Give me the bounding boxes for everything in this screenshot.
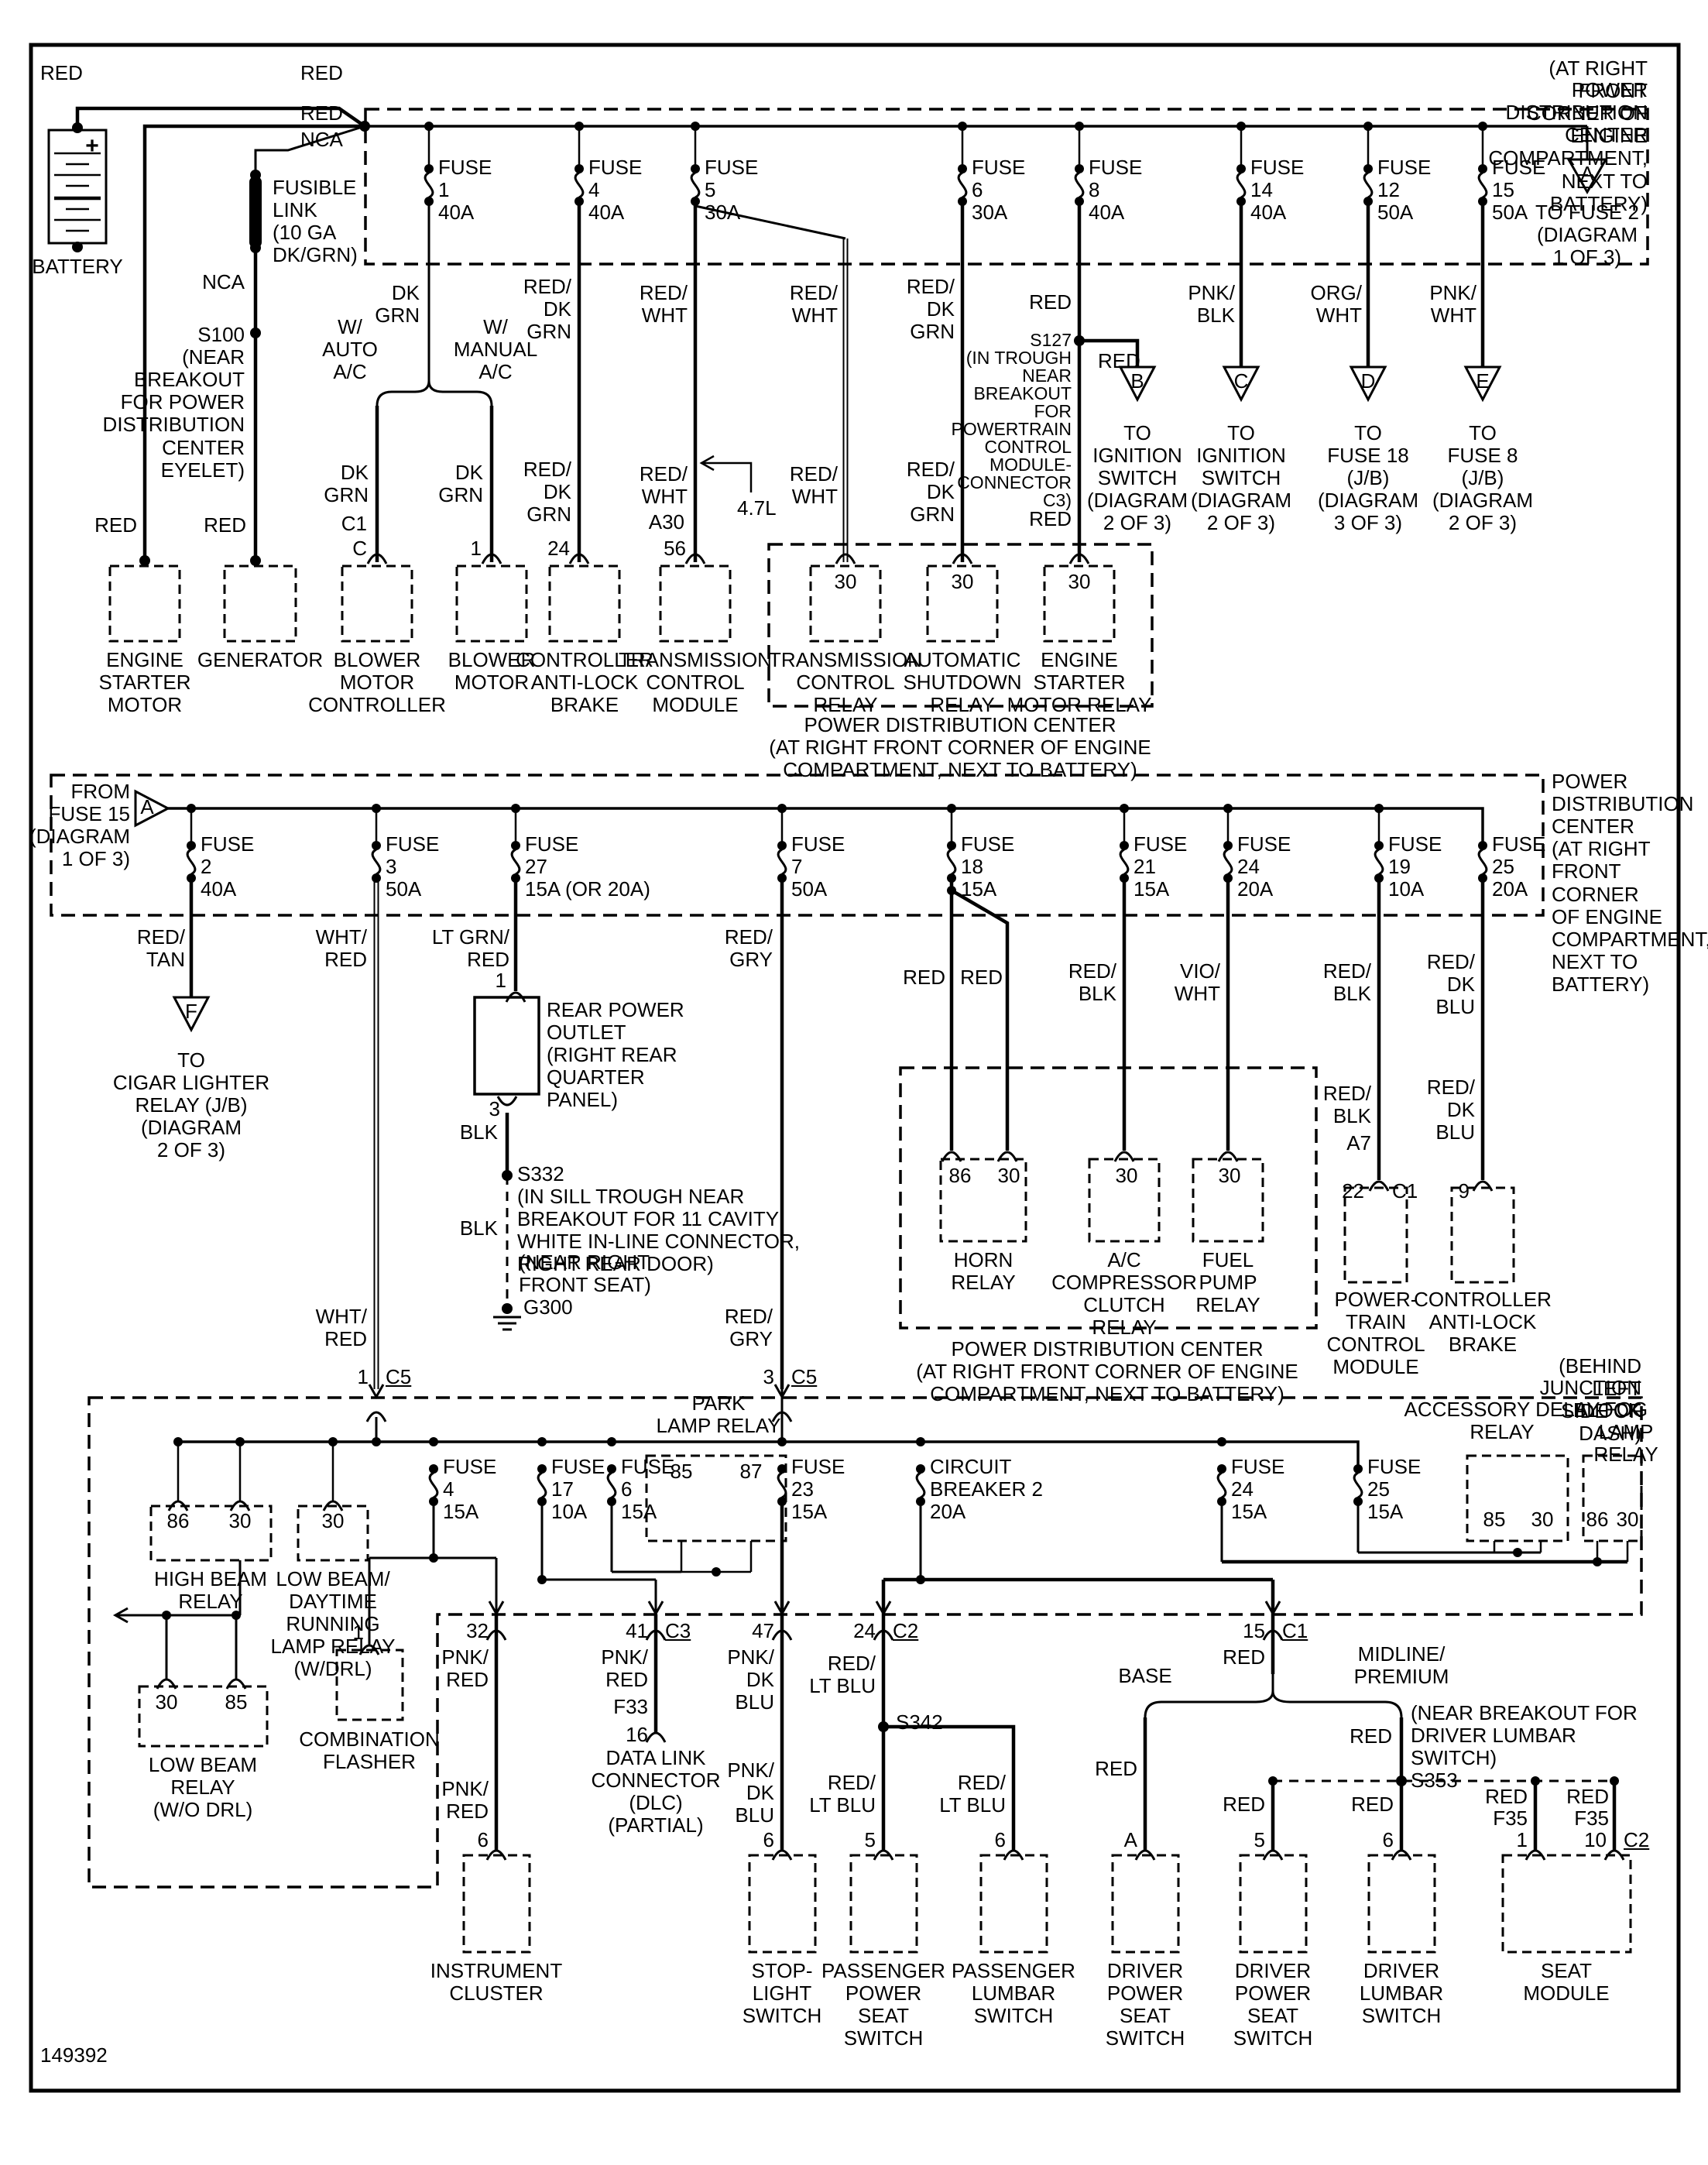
connector-c5-a: C5 xyxy=(386,1366,411,1388)
generator-box xyxy=(225,566,296,641)
splice-s353-note: (NEAR BREAKOUT FOR DRIVER LUMBAR SWITCH)… xyxy=(1411,1702,1638,1792)
connector-c1-b: C1 xyxy=(1282,1620,1308,1642)
ic-pin-6: 6 xyxy=(478,1829,489,1851)
accessory-delay-relay-label: ACCESSORY DELAY RELAY xyxy=(1404,1398,1600,1443)
hbr-pin-86: 86 xyxy=(167,1510,190,1532)
dls-pin-6: 6 xyxy=(1383,1829,1394,1851)
battery-label: BATTERY xyxy=(32,256,123,278)
jb-fuse-25-label: FUSE 25 15A xyxy=(1367,1456,1421,1523)
engine-4-7l-pointer xyxy=(701,456,751,492)
wire-blk-2: BLK xyxy=(460,1217,498,1240)
passenger-lumbar-switch-label: PASSENGER LUMBAR SWITCH xyxy=(952,1960,1075,2027)
wire-whtred-top: WHT/ RED xyxy=(316,926,367,971)
pin-1: 1 xyxy=(471,537,482,560)
wire-dkgrn-top: DK GRN xyxy=(375,282,420,327)
driver-power-seat-switch-b-box xyxy=(1240,1855,1306,1952)
high-beam-relay-label: HIGH BEAM RELAY xyxy=(154,1568,267,1613)
fuse-3-label: FUSE 3 50A xyxy=(386,833,439,901)
wire-red-f35a: RED xyxy=(1485,1786,1528,1808)
rear-power-outlet-label: REAR POWER OUTLET (RIGHT REAR QUARTER PA… xyxy=(547,999,684,1112)
wire-redltblu-pls: RED/ LT BLU xyxy=(939,1772,1006,1817)
jb-fuse-4-label: FUSE 4 15A xyxy=(443,1456,496,1523)
horn-pin-86: 86 xyxy=(949,1165,972,1187)
pls-pin-6: 6 xyxy=(995,1829,1006,1851)
circuit-breaker-2-label: CIRCUIT BREAKER 2 20A xyxy=(930,1456,1043,1523)
low-beam-drl-relay-label: LOW BEAM/ DAYTIME RUNNING LAMP RELAY (W/… xyxy=(271,1568,396,1681)
wire-pnkred-ic-top: PNK/ RED xyxy=(441,1646,489,1691)
adr-pin-30: 30 xyxy=(1531,1508,1554,1531)
wire-red-esmr: RED xyxy=(1029,508,1072,530)
wire-redblk-f21: RED/ BLK xyxy=(1068,960,1116,1005)
jb-fuse-23-label: FUSE 23 15A xyxy=(791,1456,845,1523)
wire-redltblu-pps: RED/ LT BLU xyxy=(809,1772,876,1817)
splice-s342-label: S342 xyxy=(896,1711,943,1734)
caption-ignition-b: TO IGNITION SWITCH (DIAGRAM 2 OF 3) xyxy=(1087,422,1188,535)
dlc-pin-16: 16 xyxy=(626,1724,648,1746)
stop-light-switch-box xyxy=(749,1855,815,1952)
wire-redwht-f5-bot: RED/ WHT xyxy=(640,463,688,508)
fpr-pin-30: 30 xyxy=(1219,1165,1241,1187)
pcm-pin-22: 22 xyxy=(1342,1180,1364,1203)
wire-redwht-f5-top: RED/ WHT xyxy=(640,282,688,327)
esmr-pin-30: 30 xyxy=(1068,571,1091,593)
wire-pnkdkblu-top: PNK/ DK BLU xyxy=(727,1646,774,1714)
engine-4-7l-note: 4.7L xyxy=(737,497,777,520)
triangle-e-letter: E xyxy=(1476,370,1489,393)
dpss-pin-a: A xyxy=(1124,1829,1137,1851)
triangle-d-letter: D xyxy=(1361,370,1376,393)
triangle-c-letter: C xyxy=(1234,370,1249,393)
wire-redltblu-top: RED/ LT BLU xyxy=(809,1652,876,1697)
combination-flasher-label: COMBINATION FLASHER xyxy=(299,1728,440,1773)
ground-g300 xyxy=(493,1303,521,1330)
engine-starter-motor-box xyxy=(110,566,180,641)
park-pin-87: 87 xyxy=(740,1460,763,1483)
wire-viowht: VIO/ WHT xyxy=(1175,960,1220,1005)
connector-c2-a: C2 xyxy=(893,1620,918,1642)
fuse-18-label: FUSE 18 15A xyxy=(961,833,1014,901)
c5-pin-1: 1 xyxy=(358,1366,369,1388)
driver-power-seat-switch-a-label: DRIVER POWER SEAT SWITCH xyxy=(1106,1960,1185,2050)
transmission-control-module-label: TRANSMISSION CONTROL MODULE xyxy=(619,649,772,716)
powertrain-control-module-label: POWER- TRAIN CONTROL MODULE xyxy=(1326,1288,1425,1378)
connector-f35-b: F35 xyxy=(1574,1807,1609,1830)
pin-56: 56 xyxy=(664,537,686,560)
wire-redblk-f19-bot: RED/ BLK xyxy=(1323,1082,1371,1127)
wire-dkgrn-right: DK GRN xyxy=(438,461,483,506)
passenger-lumbar-switch-box xyxy=(981,1855,1047,1952)
wire-red-horn30: RED xyxy=(960,966,1003,989)
pcm-connector-c1: C1 xyxy=(1392,1180,1418,1203)
connector-c2-b: C2 xyxy=(1624,1829,1649,1851)
wire-red-15: RED xyxy=(1223,1646,1265,1669)
fuse-1-label: FUSE 1 40A xyxy=(438,156,492,224)
connector-pin-47: 47 xyxy=(752,1620,774,1642)
jb-fuse-24-label: FUSE 24 15A xyxy=(1231,1456,1284,1523)
controller-antilock-brake-box xyxy=(550,566,619,641)
blower-motor-box xyxy=(457,566,526,641)
fuel-pump-relay-label: FUEL PUMP RELAY xyxy=(1195,1249,1260,1316)
fuse-7-label: FUSE 7 50A xyxy=(791,833,845,901)
wire-blk-1: BLK xyxy=(460,1121,498,1144)
pps-pin-5: 5 xyxy=(865,1829,876,1851)
transmission-control-module-box xyxy=(660,566,730,641)
pdc1-title: POWER DISTRIBUTION CENTER xyxy=(1506,79,1648,146)
rear-power-outlet-box xyxy=(475,997,539,1094)
pdc1-fuse-row xyxy=(424,122,1487,206)
caption-fuse8-e: TO FUSE 8 (J/B) (DIAGRAM 2 OF 3) xyxy=(1432,422,1533,535)
engine-starter-motor-relay-label: ENGINE STARTER MOTOR RELAY xyxy=(1007,649,1152,716)
wire-red-3: RED xyxy=(300,102,343,125)
wire-red-b6: RED xyxy=(1351,1793,1394,1816)
driver-lumbar-switch-box xyxy=(1369,1855,1435,1952)
wire-redtan: RED/ TAN xyxy=(137,926,185,971)
fuse-2-label: FUSE 2 40A xyxy=(201,833,254,901)
wire-dkgrn-left: DK GRN xyxy=(324,461,369,506)
stop-light-switch-label: STOP- LIGHT SWITCH xyxy=(743,1960,822,2027)
accr-pin-30: 30 xyxy=(1116,1165,1138,1187)
driver-power-seat-switch-b-label: DRIVER POWER SEAT SWITCH xyxy=(1233,1960,1313,2050)
horn-relay-label: HORN RELAY xyxy=(951,1249,1015,1294)
ac-compressor-clutch-relay-label: A/C COMPRESSOR CLUTCH RELAY xyxy=(1051,1249,1197,1339)
wire-red-horn86: RED xyxy=(903,966,945,989)
wire-red-2: RED xyxy=(300,62,343,84)
connector-pin-41: 41 xyxy=(626,1620,648,1642)
wire-nca-2: NCA xyxy=(202,271,245,293)
fuse-25-label: FUSE 25 20A xyxy=(1492,833,1545,901)
to-fuse2-caption: TO FUSE 2 (DIAGRAM 1 OF 3) xyxy=(1535,201,1639,269)
transmission-control-relay-label: TRANSMISSION CONTROL RELAY xyxy=(769,649,922,716)
c5-pin-3: 3 xyxy=(763,1366,774,1388)
instrument-cluster-box xyxy=(464,1855,530,1952)
fusible-link-symbol xyxy=(249,170,262,253)
pin-c: C xyxy=(352,537,367,560)
wire-pnkblk: PNK/ BLK xyxy=(1188,282,1235,327)
connector-pin-32: 32 xyxy=(466,1620,489,1642)
wire-reddkgrn-f4-top: RED/ DK GRN xyxy=(523,276,571,343)
caption-fuse18-d: TO FUSE 18 (J/B) (DIAGRAM 3 OF 3) xyxy=(1318,422,1418,535)
connector-c5-b: C5 xyxy=(791,1366,817,1388)
lbr-pin-30: 30 xyxy=(156,1691,178,1714)
lbdrl-pin-30: 30 xyxy=(322,1510,345,1532)
caption-cigar-lighter: TO CIGAR LIGHTER RELAY (J/B) (DIAGRAM 2 … xyxy=(113,1049,269,1162)
whtred-wire xyxy=(375,878,379,1389)
fuse-12-label: FUSE 12 50A xyxy=(1377,156,1431,224)
jb-fuse-6-label: FUSE 6 15A xyxy=(621,1456,674,1523)
fuse-5-label: FUSE 5 30A xyxy=(705,156,758,224)
blower-motor-controller-box xyxy=(342,566,412,641)
wire-reddkgrn-f6-top: RED/ DK GRN xyxy=(907,276,955,343)
wire-redwht-tcr-bot: RED/ WHT xyxy=(790,463,838,508)
fuse-27-label: FUSE 27 15A (OR 20A) xyxy=(525,833,650,901)
passenger-power-seat-switch-label: PASSENGER POWER SEAT SWITCH xyxy=(821,1960,945,2050)
wire-red-esm: RED xyxy=(94,514,137,537)
triangle-b-letter: B xyxy=(1130,370,1144,393)
splice-s100 xyxy=(250,328,261,338)
near-right-front-seat-note: (NEAR RIGHT FRONT SEAT) xyxy=(519,1251,651,1296)
park-lamp-relay-label: PARK LAMP RELAY xyxy=(657,1392,781,1437)
wire-red-gen: RED xyxy=(204,514,246,537)
driver-power-seat-switch-a-box xyxy=(1113,1855,1178,1952)
generator-label: GENERATOR xyxy=(197,649,323,671)
wire-orgwht: ORG/ WHT xyxy=(1311,282,1362,327)
low-beam-relay-wodrl-label: LOW BEAM RELAY (W/O DRL) xyxy=(149,1754,257,1821)
sls-pin-6: 6 xyxy=(763,1829,774,1851)
instrument-cluster-label: INSTRUMENT CLUSTER xyxy=(430,1960,562,2005)
connector-pin-15: 15 xyxy=(1243,1620,1265,1642)
hbr-pin-30: 30 xyxy=(229,1510,252,1532)
adr-pin-85: 85 xyxy=(1483,1508,1506,1531)
lbr-pin-85: 85 xyxy=(225,1691,248,1714)
ground-g300-label: G300 xyxy=(523,1296,573,1319)
splice-s100-label: S100 (NEAR BREAKOUT FOR POWER DISTRIBUTI… xyxy=(103,324,245,482)
wiring-diagram-page: (AT RIGHT FRONT CORNER OF ENGINE COMPART… xyxy=(0,0,1708,2165)
wire-pnkred-ic-bot: PNK/ RED xyxy=(441,1778,489,1823)
wire-reddkgrn-f4-bot: RED/ DK GRN xyxy=(523,458,571,526)
fuse-19-label: FUSE 19 10A xyxy=(1388,833,1442,901)
wire-red-f35b: RED xyxy=(1566,1786,1609,1808)
wire-reddkblu-bot: RED/ DK BLU xyxy=(1427,1076,1475,1144)
tcr-pin-30: 30 xyxy=(835,571,857,593)
fuse-14-label: FUSE 14 40A xyxy=(1250,156,1304,224)
connector-a7: A7 xyxy=(1346,1132,1371,1155)
rpo-pin-3: 3 xyxy=(489,1098,500,1120)
fuse-21-label: FUSE 21 15A xyxy=(1134,833,1187,901)
pin-24: 24 xyxy=(547,537,570,560)
wire-red-b5: RED xyxy=(1223,1793,1265,1816)
triangle-f-letter: F xyxy=(185,1000,197,1023)
connector-f35-a: F35 xyxy=(1493,1807,1528,1830)
sm-pin-10: 10 xyxy=(1584,1829,1607,1851)
variant-w-auto-ac: W/ AUTO A/C xyxy=(322,316,378,383)
triangle-a2-letter: A xyxy=(140,796,153,818)
wire-redwht-tcr-top: RED/ WHT xyxy=(790,282,838,327)
wire-pnkwht: PNK/ WHT xyxy=(1429,282,1476,327)
horn-pin-30: 30 xyxy=(998,1165,1020,1187)
caption-ignition-c: TO IGNITION SWITCH (DIAGRAM 2 OF 3) xyxy=(1191,422,1291,535)
passenger-power-seat-switch-box xyxy=(851,1855,917,1952)
wire-red-base: RED xyxy=(1095,1758,1137,1780)
wire-redgry-bot: RED/ GRY xyxy=(725,1306,773,1350)
dpss-pin-5: 5 xyxy=(1254,1829,1265,1851)
wire-nca-1: NCA xyxy=(300,129,343,151)
wire-red-midline: RED xyxy=(1350,1725,1392,1748)
pdc3-caption: POWER DISTRIBUTION CENTER (AT RIGHT FRON… xyxy=(916,1338,1298,1405)
asr-pin-30: 30 xyxy=(952,571,974,593)
park-pin-85: 85 xyxy=(671,1460,693,1483)
wire-ltgrnred: LT GRN/ RED xyxy=(432,926,509,971)
sm-pin-1: 1 xyxy=(1517,1829,1528,1851)
wire-redgry-top: RED/ GRY xyxy=(725,926,773,971)
seat-module-box xyxy=(1503,1855,1631,1952)
wire-reddkgrn-f6-bot: RED/ DK GRN xyxy=(907,458,955,526)
fuse-8-label: FUSE 8 40A xyxy=(1089,156,1142,224)
triangle-a-letter: A xyxy=(1580,163,1593,185)
seat-module-label: SEAT MODULE xyxy=(1523,1960,1609,2005)
wire-pnkdkblu-bot: PNK/ DK BLU xyxy=(727,1759,774,1827)
blower-motor-controller-label: BLOWER MOTOR CONTROLLER xyxy=(308,649,446,716)
wire-whtred-bot: WHT/ RED xyxy=(316,1306,367,1350)
rpo-pin-1: 1 xyxy=(496,969,506,992)
trim-midline-premium-label: MIDLINE/ PREMIUM xyxy=(1354,1643,1449,1688)
pdc-right-caption: POWER DISTRIBUTION CENTER (AT RIGHT FRON… xyxy=(1552,770,1708,996)
trim-base-label: BASE xyxy=(1118,1665,1171,1687)
connector-f33: F33 xyxy=(613,1696,648,1718)
battery-plus: + xyxy=(85,133,99,160)
wire-red-1: RED xyxy=(40,62,83,84)
wire-red-f8: RED xyxy=(1029,291,1072,314)
wire-reddkblu-top: RED/ DK BLU xyxy=(1427,951,1475,1018)
data-link-connector-label: DATA LINK CONNECTOR (DLC) (PARTIAL) xyxy=(591,1747,720,1837)
automatic-shutdown-relay-label: AUTOMATIC SHUTDOWN RELAY xyxy=(903,649,1021,716)
controller-antilock-brake-label2: CONTROLLER ANTI-LOCK BRAKE xyxy=(1414,1288,1552,1356)
splice-s127-label: S127 (IN TROUGH NEAR BREAKOUT FOR POWERT… xyxy=(952,331,1072,510)
pdc2-caption: POWER DISTRIBUTION CENTER (AT RIGHT FRON… xyxy=(769,714,1151,781)
connector-pin-24: 24 xyxy=(853,1620,876,1642)
wire-redblk-f19-top: RED/ BLK xyxy=(1323,960,1371,1005)
fuse-24-label: FUSE 24 20A xyxy=(1237,833,1291,901)
fog-lamp-relay-label: FOG LAMP RELAY xyxy=(1585,1398,1667,1466)
from-fuse15-label: FROM FUSE 15 (DIAGRAM 1 OF 3) xyxy=(29,781,130,870)
connector-c1-label: C1 xyxy=(341,513,367,535)
flr-pin-86: 86 xyxy=(1586,1508,1609,1531)
split-brace-trim xyxy=(1145,1691,1401,1717)
engine-starter-motor-label: ENGINE STARTER MOTOR xyxy=(99,649,191,716)
flasher-pin-1: 1 xyxy=(353,1621,364,1644)
jb-fuse-17-label: FUSE 17 10A xyxy=(551,1456,605,1523)
calb-pin-9: 9 xyxy=(1459,1180,1470,1203)
wire-pnkred-dlc: PNK/ RED xyxy=(601,1646,648,1691)
driver-lumbar-switch-label: DRIVER LUMBAR SWITCH xyxy=(1360,1960,1443,2027)
fusible-link-label: FUSIBLE LINK (10 GA DK/GRN) xyxy=(273,177,358,266)
document-id: 149392 xyxy=(40,2044,108,2067)
split-brace-ac xyxy=(377,381,492,406)
flr-pin-30: 30 xyxy=(1617,1508,1639,1531)
connector-a30: A30 xyxy=(649,511,684,534)
connector-c3: C3 xyxy=(665,1620,691,1642)
fuse-6-label: FUSE 6 30A xyxy=(972,156,1025,224)
fuse-4-label: FUSE 4 40A xyxy=(588,156,642,224)
